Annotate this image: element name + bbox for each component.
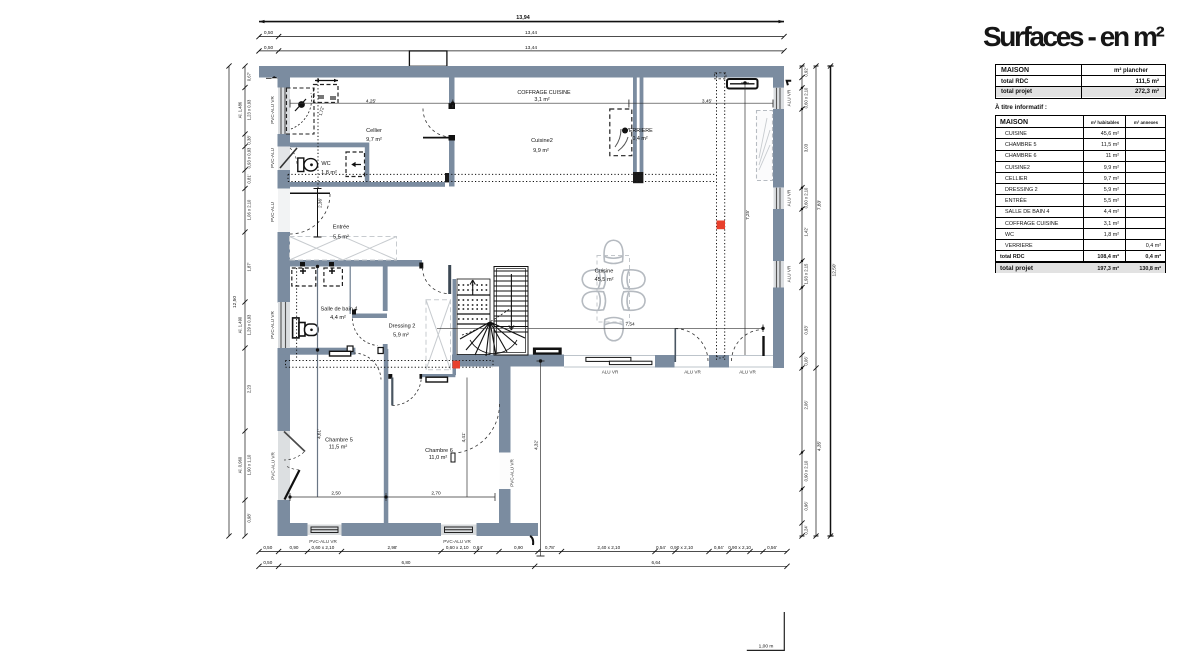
svg-text:6,64: 6,64 [652,560,661,565]
svg-text:0,90 x 2,10: 0,90 x 2,10 [670,545,693,550]
svg-text:Salle de bain 4: Salle de bain 4 [320,307,357,313]
svg-text:0,60 x 2,10: 0,60 x 2,10 [312,545,335,550]
svg-text:12,50': 12,50' [832,263,838,276]
svg-text:0,93': 0,93' [804,325,809,334]
svg-text:3,1 m²: 3,1 m² [534,97,549,103]
svg-text:0,54': 0,54' [656,545,666,550]
svg-text:0,92': 0,92' [804,67,809,76]
svg-text:0,84': 0,84' [473,545,483,550]
svg-text:0,24': 0,24' [804,525,809,534]
svg-text:PVC-ALU VR: PVC-ALU VR [510,459,515,487]
svg-text:3,45': 3,45' [702,99,712,105]
svg-text:Dressing 2: Dressing 2 [389,324,416,330]
svg-text:7,25': 7,25' [745,210,750,220]
svg-text:7,83': 7,83' [817,200,823,210]
svg-text:0,81': 0,81' [247,174,252,183]
svg-text:COFFRAGE CUISINE: COFFRAGE CUISINE [517,90,571,96]
svg-text:Entrée: Entrée [333,225,349,231]
svg-text:0,78': 0,78' [545,545,555,550]
svg-text:1,23 x 0,93: 1,23 x 0,93 [247,99,252,120]
svg-text:9,7 m²: 9,7 m² [366,137,382,143]
svg-text:0,38': 0,38' [247,135,252,144]
svg-text:0,67': 0,67' [247,72,252,81]
svg-text:0,60 x 2,10: 0,60 x 2,10 [804,87,809,108]
svg-text:1,87': 1,87' [247,262,252,271]
svg-text:Al. 1,490: Al. 1,490 [238,316,243,333]
svg-text:0,50: 0,50 [264,45,274,51]
svg-text:0,90 x 2,10: 0,90 x 2,10 [804,460,809,481]
svg-text:5,5 m²: 5,5 m² [333,235,349,241]
svg-text:3,03: 3,03 [804,143,809,152]
svg-text:PVC-ALU VR: PVC-ALU VR [270,96,275,124]
svg-text:13,44: 13,44 [525,30,537,36]
svg-text:1,06 x 2,10: 1,06 x 2,10 [247,199,252,220]
svg-text:ALU VR: ALU VR [787,189,792,206]
svg-text:2,06': 2,06' [804,400,809,409]
svg-text:11,5 m²: 11,5 m² [329,445,348,451]
svg-text:13,94: 13,94 [516,15,530,21]
svg-text:ALU VR: ALU VR [602,370,619,375]
svg-text:1,42': 1,42' [804,227,809,236]
svg-text:11,0 m²: 11,0 m² [429,455,448,461]
svg-text:0,90: 0,90 [290,545,299,550]
svg-text:0,50: 0,50 [264,30,274,36]
svg-text:4,25': 4,25' [366,99,376,105]
svg-text:2,23: 2,23 [247,384,252,393]
svg-text:PVC-ALU VR: PVC-ALU VR [271,452,276,480]
svg-text:0,96': 0,96' [804,501,809,510]
svg-text:4,35': 4,35' [817,441,823,451]
svg-text:1,72': 1,72' [318,106,325,117]
svg-text:ALU VR: ALU VR [684,370,701,375]
svg-text:7,54: 7,54 [625,322,635,328]
svg-text:0,60 x 2,10: 0,60 x 2,10 [446,545,469,550]
svg-text:Cuisine: Cuisine [595,269,614,275]
svg-text:0,84': 0,84' [714,545,724,550]
svg-text:0,06': 0,06' [804,356,809,365]
svg-text:1,8 m²: 1,8 m² [321,170,337,176]
svg-text:9,9 m²: 9,9 m² [533,148,549,154]
svg-text:2,70: 2,70 [431,491,441,497]
svg-text:4,61': 4,61' [317,429,322,439]
svg-text:ALU VR: ALU VR [787,89,792,106]
svg-text:Chambre 5: Chambre 5 [325,438,353,444]
svg-text:4,32': 4,32' [534,440,539,450]
svg-text:0,50: 0,50 [263,545,272,550]
svg-text:0,4 m²: 0,4 m² [632,136,647,142]
svg-text:0,56': 0,56' [767,545,777,550]
svg-text:VERRIERE: VERRIERE [625,128,653,134]
svg-text:ALU VR: ALU VR [739,370,756,375]
svg-text:PVC-ALU VR: PVC-ALU VR [309,539,337,544]
svg-text:PVC-ALU: PVC-ALU [270,202,275,222]
svg-text:0,90 x 2,10: 0,90 x 2,10 [728,545,751,550]
svg-text:5,9 m²: 5,9 m² [393,333,409,339]
svg-text:Cuisine2: Cuisine2 [531,138,553,144]
svg-text:13,44: 13,44 [525,45,537,51]
svg-text:WC: WC [321,161,330,167]
svg-text:Chambre 6: Chambre 6 [425,448,453,454]
svg-text:1,00 m: 1,00 m [759,644,774,650]
svg-text:45,5 m²: 45,5 m² [595,277,614,283]
svg-text:0,50: 0,50 [263,560,272,565]
svg-text:PVC-ALU: PVC-ALU [270,148,275,168]
svg-text:0,90: 0,90 [514,545,523,550]
svg-text:ALU VR: ALU VR [787,265,792,282]
svg-text:0,98': 0,98' [247,513,252,522]
svg-text:2,36': 2,36' [318,198,323,208]
svg-text:0,60 x 2,10: 0,60 x 2,10 [804,187,809,208]
svg-text:Al. 1,486: Al. 1,486 [238,101,243,118]
svg-text:2,98': 2,98' [387,545,397,550]
svg-text:12,50: 12,50 [232,296,238,308]
svg-text:Al. 0,960: Al. 0,960 [238,456,243,473]
svg-text:2,40 x 2,10: 2,40 x 2,10 [597,545,620,550]
svg-text:1,29 x 0,93: 1,29 x 0,93 [247,314,252,335]
svg-text:4,4 m²: 4,4 m² [330,315,346,321]
svg-text:Cellier: Cellier [366,128,382,134]
svg-text:2,50: 2,50 [331,491,341,497]
svg-text:PVC-ALU VR: PVC-ALU VR [270,311,275,339]
svg-text:0,93 x 0,93: 0,93 x 0,93 [247,147,252,168]
svg-text:4,41': 4,41' [461,432,466,442]
svg-text:PVC-ALU VR: PVC-ALU VR [443,539,471,544]
svg-text:1,93 x 2,15: 1,93 x 2,15 [804,263,809,284]
svg-text:6,80: 6,80 [402,560,411,565]
svg-text:1,90 x 1,10: 1,90 x 1,10 [247,454,252,475]
